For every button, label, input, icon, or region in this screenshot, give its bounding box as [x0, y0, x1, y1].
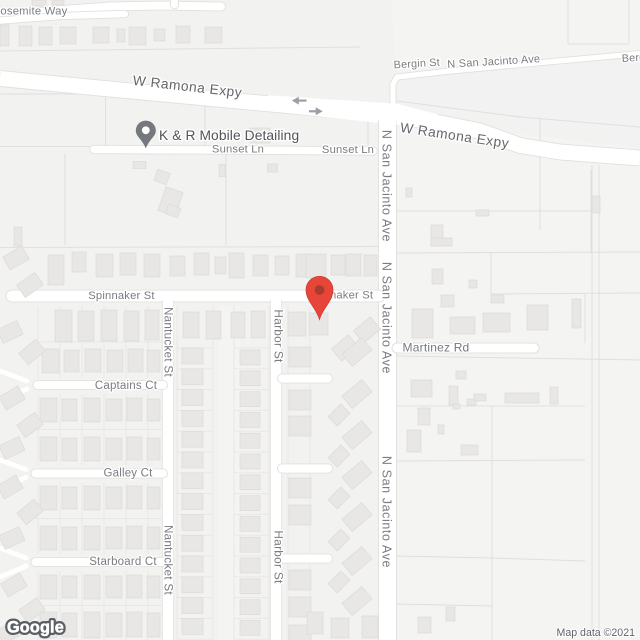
svg-text:Google: Google — [7, 619, 64, 637]
svg-text:K & R Mobile Detailing: K & R Mobile Detailing — [159, 128, 299, 143]
svg-text:Nantucket St: Nantucket St — [162, 307, 175, 377]
svg-text:N San Jacinto Ave: N San Jacinto Ave — [379, 456, 393, 568]
svg-text:Martinez Rd: Martinez Rd — [403, 341, 470, 355]
svg-text:Captains Ct: Captains Ct — [95, 380, 158, 392]
svg-text:N San Jacinto Ave: N San Jacinto Ave — [379, 262, 393, 374]
svg-text:Harbor St: Harbor St — [272, 309, 286, 363]
svg-text:Map data ©2021: Map data ©2021 — [557, 627, 636, 639]
svg-text:Harbor St: Harbor St — [272, 530, 286, 584]
svg-text:Sunset Ln: Sunset Ln — [322, 144, 374, 156]
svg-text:N San Jacinto Ave: N San Jacinto Ave — [379, 130, 393, 242]
svg-text:Sunset Ln: Sunset Ln — [212, 144, 264, 156]
svg-text:Spinnaker St: Spinnaker St — [88, 290, 155, 302]
svg-text:Starboard Ct: Starboard Ct — [89, 556, 157, 568]
svg-text:Bergin St: Bergin St — [621, 50, 640, 65]
svg-text:Galley Ct: Galley Ct — [103, 468, 153, 480]
svg-text:Rosemite Way: Rosemite Way — [0, 6, 68, 18]
svg-text:Nantucket St: Nantucket St — [162, 525, 175, 595]
